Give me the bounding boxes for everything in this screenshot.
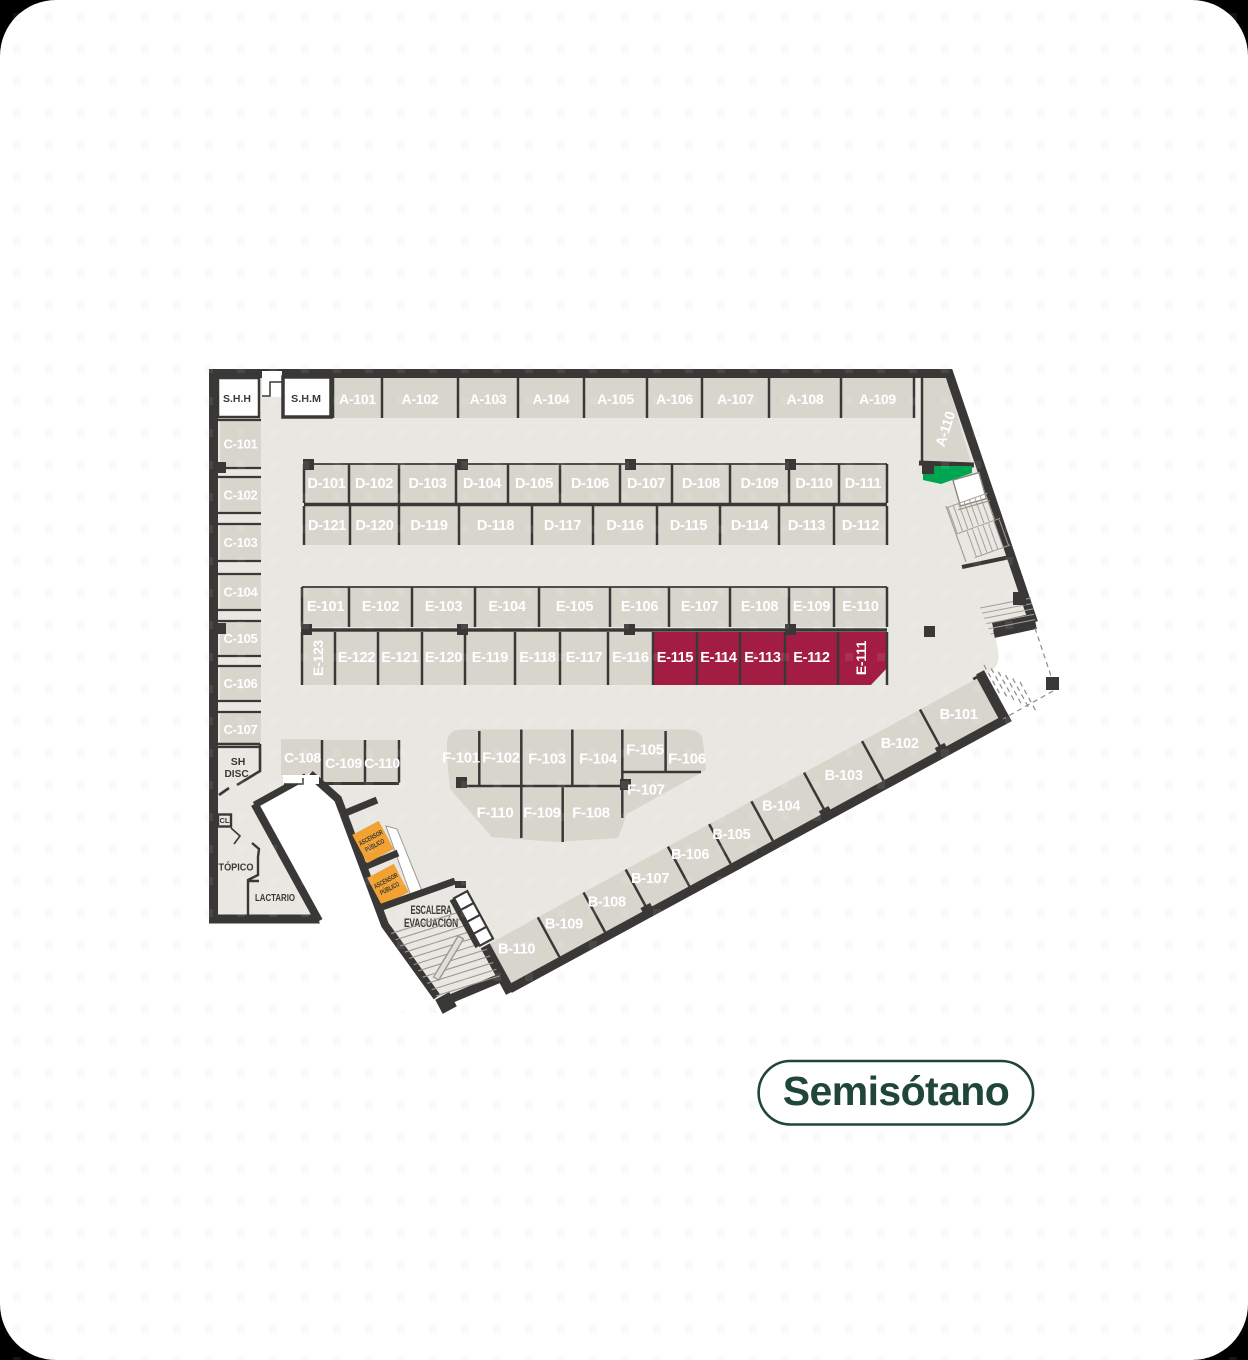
svg-text:Semisótano: Semisótano <box>783 1068 1009 1114</box>
